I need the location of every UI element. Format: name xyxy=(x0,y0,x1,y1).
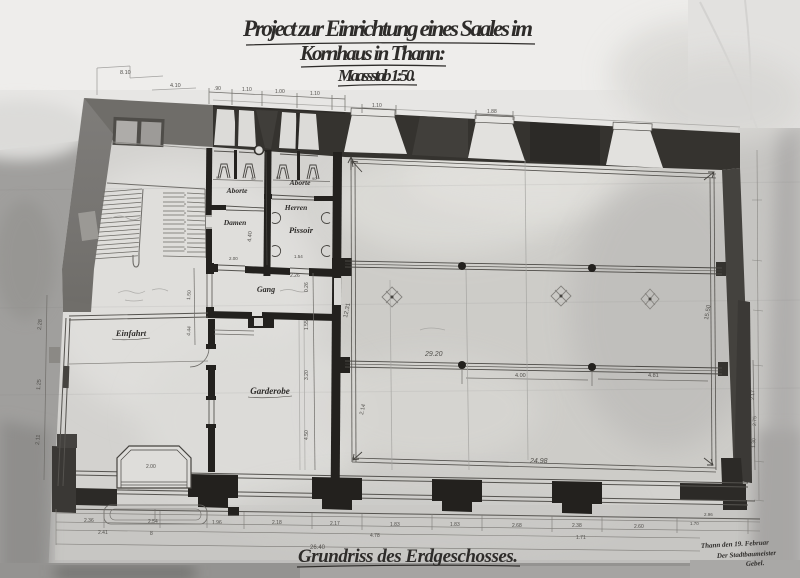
svg-text:1.30: 1.30 xyxy=(751,438,757,448)
svg-text:Einfahrt: Einfahrt xyxy=(115,328,147,338)
svg-text:Kornhaus in Thann:: Kornhaus in Thann: xyxy=(299,41,446,65)
svg-text:Maassstab 1:50.: Maassstab 1:50. xyxy=(337,66,416,85)
svg-text:1.00: 1.00 xyxy=(275,89,285,95)
svg-text:1.54: 1.54 xyxy=(294,254,303,259)
svg-text:2.17: 2.17 xyxy=(330,521,340,527)
svg-text:4.78: 4.78 xyxy=(370,533,380,539)
svg-text:4.81: 4.81 xyxy=(648,373,659,379)
svg-text:2.38: 2.38 xyxy=(572,523,582,529)
svg-text:1.10: 1.10 xyxy=(372,103,382,109)
svg-text:2.41: 2.41 xyxy=(98,530,108,536)
svg-text:1.10: 1.10 xyxy=(310,91,320,97)
svg-text:1.88: 1.88 xyxy=(487,109,497,115)
svg-text:1.50: 1.50 xyxy=(186,290,193,300)
svg-text:1.71: 1.71 xyxy=(576,535,586,541)
svg-text:2.75: 2.75 xyxy=(752,416,758,426)
svg-text:90: 90 xyxy=(312,176,317,181)
svg-text:.90: .90 xyxy=(214,86,221,92)
svg-text:Garderobe: Garderobe xyxy=(250,386,290,396)
svg-text:1.55: 1.55 xyxy=(304,320,310,330)
svg-text:1.83: 1.83 xyxy=(390,522,400,528)
svg-text:4.40: 4.40 xyxy=(247,231,254,242)
svg-text:29.20: 29.20 xyxy=(424,351,443,358)
svg-text:90: 90 xyxy=(276,175,281,180)
svg-text:2.60: 2.60 xyxy=(634,524,644,530)
svg-text:1.25: 1.25 xyxy=(36,379,43,390)
svg-text:24.98: 24.98 xyxy=(529,458,548,465)
svg-text:4.10: 4.10 xyxy=(170,83,181,89)
svg-text:1.96: 1.96 xyxy=(212,520,222,526)
svg-text:Aborte: Aborte xyxy=(289,178,312,187)
svg-text:Gang: Gang xyxy=(257,285,275,294)
svg-text:Gebel.: Gebel. xyxy=(746,559,765,568)
svg-text:Damen: Damen xyxy=(223,218,247,227)
svg-text:1.10: 1.10 xyxy=(242,87,252,93)
svg-text:90: 90 xyxy=(251,176,256,181)
svg-text:Grundriss des Erdgeschosses.: Grundriss des Erdgeschosses. xyxy=(298,546,518,567)
svg-text:4.50: 4.50 xyxy=(304,430,310,440)
svg-text:2.54: 2.54 xyxy=(148,519,158,525)
svg-text:4.44: 4.44 xyxy=(186,326,193,336)
svg-text:2.26: 2.26 xyxy=(290,273,300,279)
svg-text:2.36: 2.36 xyxy=(84,518,94,524)
svg-text:90: 90 xyxy=(216,175,221,180)
svg-text:2.28: 2.28 xyxy=(37,319,44,330)
svg-text:Project zur Einrichtung eines: Project zur Einrichtung eines Saales im xyxy=(242,16,533,41)
svg-text:2.17: 2.17 xyxy=(750,390,756,400)
svg-text:8: 8 xyxy=(150,531,153,537)
svg-text:8.10: 8.10 xyxy=(120,70,131,76)
svg-text:Herren: Herren xyxy=(284,203,308,212)
svg-text:2.11: 2.11 xyxy=(35,434,42,445)
svg-text:2.00: 2.00 xyxy=(229,256,238,261)
svg-text:3.20: 3.20 xyxy=(304,370,310,380)
svg-text:0.26: 0.26 xyxy=(304,282,310,292)
svg-text:Pissoir: Pissoir xyxy=(289,225,314,235)
svg-text:2.96: 2.96 xyxy=(704,512,713,517)
svg-text:1.70: 1.70 xyxy=(690,521,699,526)
svg-text:2.00: 2.00 xyxy=(146,464,156,470)
svg-text:4.00: 4.00 xyxy=(515,373,526,379)
svg-text:Aborte: Aborte xyxy=(226,186,249,195)
